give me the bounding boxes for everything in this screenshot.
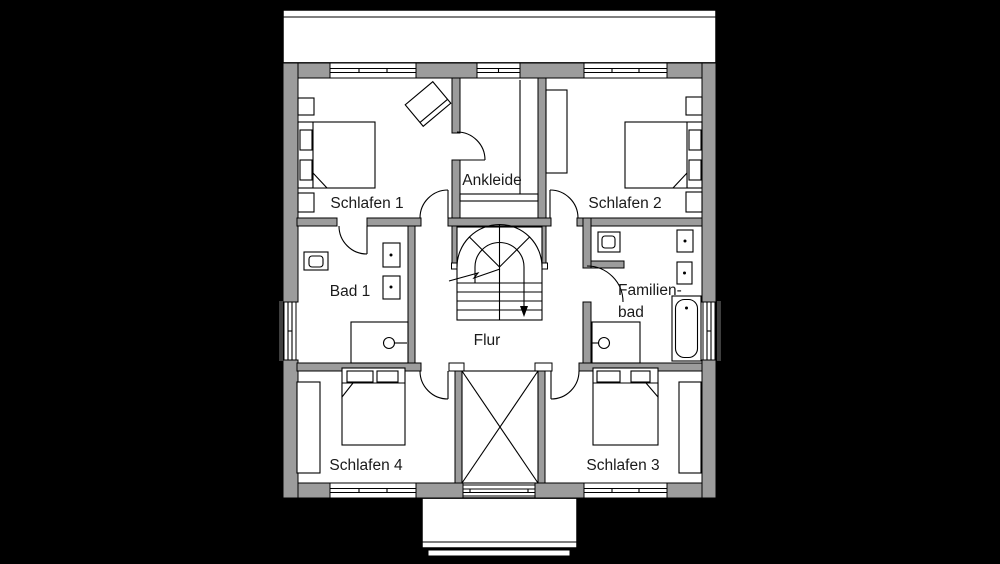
- bed-schlafen3: [593, 368, 658, 445]
- room-label-flur: Flur: [474, 332, 501, 349]
- room-label-schlafen4: Schlafen 4: [329, 457, 403, 474]
- pillow: [689, 130, 701, 150]
- pillow: [597, 371, 620, 382]
- bathtub: [672, 296, 701, 361]
- window-top-schlafen1: [330, 63, 416, 78]
- room-label-ankleide: Ankleide: [462, 172, 521, 189]
- window-bottom-schlafen3: [584, 483, 667, 498]
- window-top-ankleide: [477, 63, 520, 78]
- window-right-familienbad: [703, 302, 715, 360]
- pillow: [300, 130, 312, 150]
- floor-plan-drawing: Schlafen 1 Ankleide Schlafen 2 Bad 1 Fam…: [0, 0, 1000, 564]
- sink: [383, 243, 400, 267]
- bed-schlafen2: [625, 122, 702, 188]
- wardrobe-schlafen2: [546, 90, 567, 173]
- window-left-bad1: [284, 302, 296, 360]
- pillow: [377, 371, 398, 382]
- window-bottom-schlafen4: [330, 483, 416, 498]
- pillow: [300, 160, 312, 180]
- roof-overhang: [283, 10, 716, 63]
- floor-plan-canvas: Schlafen 1 Ankleide Schlafen 2 Bad 1 Fam…: [0, 0, 1000, 564]
- balcony-door: [463, 485, 535, 496]
- toilet-bad1: [304, 252, 328, 270]
- staircase: [449, 225, 542, 321]
- pillow: [631, 371, 650, 382]
- balcony: [422, 498, 577, 556]
- room-label-familienbad-line1: Familien-: [618, 282, 682, 299]
- sink: [383, 276, 400, 299]
- nightstand: [686, 192, 702, 212]
- nightstand: [298, 193, 314, 212]
- sink: [677, 262, 692, 284]
- room-label-schlafen1: Schlafen 1: [330, 195, 403, 212]
- window-sill-right: [717, 301, 721, 361]
- bed-schlafen4: [342, 368, 405, 445]
- toilet-familienbad: [598, 232, 620, 252]
- room-label-familienbad-line2: bad: [618, 304, 644, 321]
- room-label-schlafen3: Schlafen 3: [586, 457, 659, 474]
- nightstand: [686, 97, 702, 115]
- room-label-schlafen2: Schlafen 2: [588, 195, 661, 212]
- window-sill-left: [279, 301, 283, 361]
- pillow: [347, 371, 373, 382]
- bed-schlafen1: [298, 122, 375, 188]
- room-label-bad1: Bad 1: [330, 283, 371, 300]
- nightstand: [298, 98, 314, 115]
- wardrobe-schlafen4: [297, 382, 320, 473]
- wardrobe-schlafen3: [679, 382, 701, 473]
- window-top-schlafen2: [584, 63, 667, 78]
- sink: [677, 230, 693, 252]
- pillow: [689, 160, 701, 180]
